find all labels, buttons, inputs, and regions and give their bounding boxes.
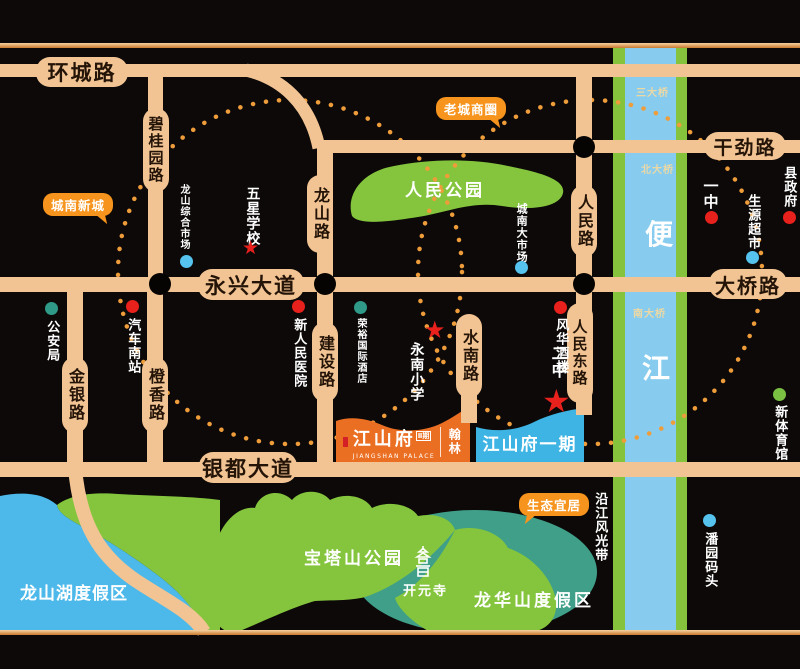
pagoda-icon: [411, 545, 435, 577]
road-label-shuinan: 水南路: [456, 314, 482, 398]
hospital-dot-marker: [292, 300, 305, 313]
riverside-belt-label: 沿江风光带: [592, 492, 606, 562]
poi-label-yongnan-school: 永南小学: [408, 342, 423, 402]
junction-dot: [573, 136, 595, 158]
road-label-text: 永兴大道: [205, 270, 297, 300]
road-top-line: [0, 43, 800, 48]
road-label-jinyin: 金银路: [62, 357, 88, 433]
river-name-char-2: 江: [642, 347, 670, 387]
poi-label-longshan-market: 龙山综合市场: [178, 184, 189, 250]
poi-label-xin-renmin-hospital: 新人民医院: [291, 318, 305, 388]
gov-dot-marker: [783, 211, 796, 224]
market-dot-marker: [746, 251, 759, 264]
station-dot-marker: [126, 300, 139, 313]
road-label-renmin: 人民路: [571, 185, 597, 257]
bridge-label-south: 南大桥: [633, 305, 666, 320]
callout-chengnan-xincheng: 城南新城: [43, 193, 113, 216]
longhuashan-resort-label: 龙华山度假区: [474, 586, 594, 611]
poi-label-new-gym: 新体育馆: [772, 405, 786, 461]
junction-dot: [573, 273, 595, 295]
callout-text: 城南新城: [51, 198, 105, 213]
bureau-dot-marker: [45, 302, 58, 315]
road-label-text: 金银路: [63, 368, 87, 422]
kaiyuan-temple-label: 开元寺: [403, 580, 448, 599]
project-badge: 江山府Ⅱ期 JIANGSHAN PALACE 翰林: [338, 420, 468, 464]
road-yongxing-daqiao: [0, 277, 800, 292]
project-brand: 翰林: [446, 428, 463, 456]
callout-text: 生态宜居: [527, 498, 581, 513]
junction-dot: [149, 273, 171, 295]
school-star-marker: ★: [542, 385, 571, 417]
project-name-text: 江山府: [353, 429, 416, 450]
baota-park-label: 宝塔山公园: [304, 544, 404, 569]
hotel-dot-marker: [354, 301, 367, 314]
poi-label-rongyu-hotel: 荣裕国际酒店: [355, 318, 366, 384]
poi-label-chengnan-market: 城南大市场: [515, 203, 527, 263]
road-label-text: 银都大道: [202, 453, 294, 483]
bridge-label-3rd: 三大桥: [636, 84, 669, 99]
road-label-yongxing: 永兴大道: [198, 269, 304, 300]
school-dot-marker: [705, 211, 718, 224]
gym-dot-marker: [773, 388, 786, 401]
road-label-text: 干劲路: [713, 133, 776, 160]
longshan-road-curve: [246, 70, 319, 148]
junction-dot: [314, 273, 336, 295]
road-label-ganjin: 干劲路: [704, 132, 786, 160]
poi-label-county-gov: 县政府: [781, 166, 795, 208]
road-label-text: 碧桂园路: [146, 116, 167, 184]
road-label-text: 人民路: [572, 194, 596, 248]
project-seal-mark: [343, 437, 348, 447]
road-label-text: 龙山路: [308, 187, 332, 241]
road-label-chengxiang: 橙香路: [142, 357, 168, 433]
project-name: 江山府Ⅱ期: [353, 429, 432, 450]
poi-label-gongan-bureau: 公安局: [44, 320, 58, 362]
restaurant-dot-marker: [554, 301, 567, 314]
project-name-en: JIANGSHAN PALACE: [353, 453, 435, 460]
road-label-text: 建设路: [313, 335, 337, 389]
poi-label-qiche-south-station: 汽车南站: [125, 318, 139, 374]
poi-label-shengyuan-market: 生源超市: [745, 194, 759, 250]
poi-label-no1-middle-school: 一中: [702, 178, 719, 210]
road-label-text: 环城路: [48, 57, 117, 87]
road-bottom-line: [0, 630, 800, 635]
callout-text: 老城商圈: [444, 102, 498, 117]
road-label-jianshe: 建设路: [312, 322, 338, 402]
callout-laocheng-shangquan: 老城商圈: [436, 97, 506, 120]
river-bianjiang: [625, 48, 676, 633]
road-label-yindu: 银都大道: [199, 452, 297, 483]
river-name-char-1: 便: [645, 213, 673, 253]
project-phase-tag: Ⅱ期: [416, 431, 432, 441]
phase1-badge: 江山府一期: [476, 424, 584, 460]
market-dot-marker: [515, 261, 528, 274]
school-star-marker: ★: [424, 318, 446, 342]
road-label-text: 大桥路: [715, 270, 781, 299]
road-label-longshan: 龙山路: [307, 175, 333, 253]
road-label-huancheng: 环城路: [36, 57, 128, 87]
road-label-biguiyuan: 碧桂园路: [143, 108, 169, 192]
project-divider: [440, 427, 441, 457]
bridge-label-north: 北大桥: [641, 161, 674, 176]
wharf-dot-marker: [703, 514, 716, 527]
renmin-park-label: 人民公园: [405, 176, 485, 201]
market-dot-marker: [180, 255, 193, 268]
road-label-text: 水南路: [457, 329, 481, 383]
road-label-renmindong: 人民东路: [567, 303, 593, 403]
longshanhu-resort-label: 龙山湖度假区: [20, 579, 128, 604]
location-map: 环城路 干劲路 永兴大道 大桥路 银都大道 碧桂园路 龙山路 人民路 金银路 橙…: [0, 0, 800, 669]
poi-label-panyuan-wharf: 潘园码头: [702, 532, 716, 588]
school-star-marker: ★: [242, 239, 259, 258]
road-label-text: 橙香路: [143, 368, 167, 422]
road-label-daqiao: 大桥路: [709, 269, 787, 299]
callout-shengtai-yiju: 生态宜居: [519, 493, 589, 516]
road-label-text: 人民东路: [570, 319, 591, 387]
road-yindu: [0, 462, 800, 477]
poi-label-no2-middle-school: 二中: [549, 345, 567, 379]
